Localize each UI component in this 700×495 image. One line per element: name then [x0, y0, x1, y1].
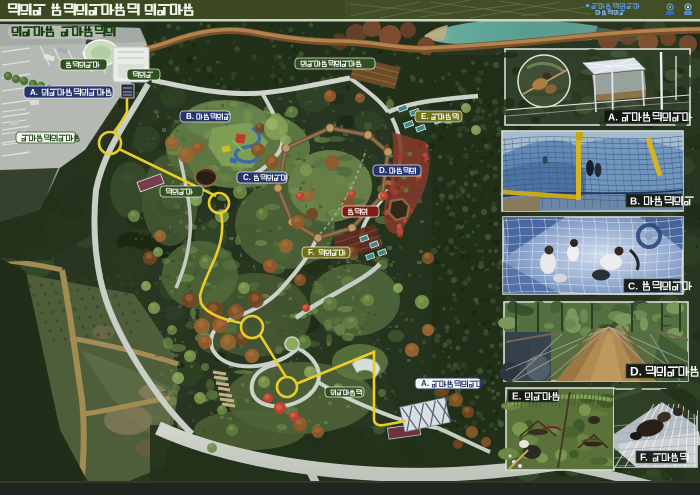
svg-text:F.: F.	[640, 452, 648, 463]
svg-text:F.: F.	[308, 248, 314, 257]
svg-text:D.: D.	[379, 166, 387, 175]
svg-text:B.: B.	[186, 112, 194, 121]
svg-text:A.: A.	[421, 379, 429, 388]
svg-text:A.: A.	[608, 112, 618, 123]
svg-text:B.: B.	[630, 196, 640, 207]
svg-text:A.: A.	[30, 88, 38, 97]
svg-text:D.: D.	[630, 364, 642, 378]
svg-text:C.: C.	[628, 281, 638, 292]
svg-text:E.: E.	[421, 112, 429, 121]
svg-text:E.: E.	[512, 391, 522, 402]
svg-text:C.: C.	[243, 173, 251, 182]
